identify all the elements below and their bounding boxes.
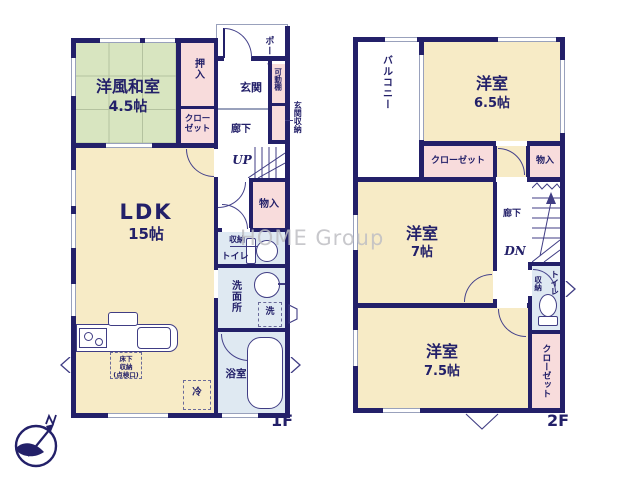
floor-plan-canvas: 洋風和室 4.5帖 押入 クローゼット 玄関 ポーチ 可動棚 玄関収納 廊下 U… xyxy=(0,0,640,480)
kitchen-sink xyxy=(137,327,171,349)
wall xyxy=(268,140,285,144)
door-opening xyxy=(214,270,218,298)
monoire-2f-label: 物入 xyxy=(531,156,559,166)
window xyxy=(71,58,76,96)
door-opening xyxy=(214,149,218,177)
compass-north-icon xyxy=(8,412,66,474)
washitsu-name-label: 洋風和室 xyxy=(87,78,169,96)
door-swing-mark xyxy=(288,304,300,324)
storage-2f-label: 収納 xyxy=(533,276,542,291)
monoire-1f-label: 物入 xyxy=(254,199,284,211)
stairs-2f xyxy=(532,182,560,262)
wall xyxy=(526,141,530,178)
bedroom3-name-label: 洋室 xyxy=(412,343,472,361)
window xyxy=(353,330,358,366)
door-opening xyxy=(496,177,527,182)
toilet-bowl-2f xyxy=(539,294,557,317)
ldk-name-label: LDK xyxy=(110,200,182,224)
underfloor-line2: 収納 xyxy=(120,363,133,371)
genkan-storage-label: 玄関収納 xyxy=(293,101,302,133)
room-ldk xyxy=(76,148,214,413)
window-swing-mark xyxy=(465,413,499,431)
underfloor-line3: (点検口) xyxy=(113,371,138,379)
window xyxy=(385,37,417,42)
underfloor-line1: 床下 xyxy=(120,355,133,363)
door-opening xyxy=(496,141,527,146)
stove xyxy=(79,328,107,348)
room-genkan-storage xyxy=(272,106,285,140)
closet-1f-label: クローゼット xyxy=(182,115,213,135)
floor2-label: 2F xyxy=(547,411,569,430)
door-opening xyxy=(528,270,532,296)
washbasin xyxy=(254,272,280,298)
balcony-sliding-door xyxy=(419,55,424,140)
washbasin-tap xyxy=(278,283,285,285)
wall xyxy=(214,264,290,268)
window xyxy=(383,408,420,413)
bedroom3-size-label: 7.5帖 xyxy=(416,365,468,380)
closet-2f-top-label: クローゼット xyxy=(428,156,488,166)
washroom-label: 洗面所 xyxy=(229,280,241,313)
stairs-1f xyxy=(248,147,285,178)
stairs-down-label: DN xyxy=(503,245,527,259)
floor1-label: 1F xyxy=(271,411,293,430)
washitsu-size-label: 4.5帖 xyxy=(97,99,159,115)
window xyxy=(100,38,140,43)
wall xyxy=(176,38,181,147)
bathtub xyxy=(247,337,283,409)
stove-burner xyxy=(95,338,103,346)
wall xyxy=(268,61,272,143)
genkan-label: 玄関 xyxy=(229,82,273,95)
step-line xyxy=(218,108,268,110)
oshiire-label: 押入 xyxy=(192,58,204,80)
wall xyxy=(493,141,497,178)
closet-2f-bottom-label: クローゼット xyxy=(540,344,550,398)
vent-chevron xyxy=(565,281,576,297)
window xyxy=(145,38,175,43)
wall xyxy=(528,262,565,266)
vent-chevron xyxy=(60,357,71,373)
porch-label: ポーチ xyxy=(263,36,273,66)
bedroom2-size-label: 7帖 xyxy=(398,246,446,261)
stove-burner xyxy=(84,332,93,341)
window xyxy=(108,413,168,418)
ldk-size-label: 15帖 xyxy=(116,226,176,243)
toilet-1f-label: トイレ xyxy=(220,252,250,262)
wall xyxy=(249,178,290,182)
bedroom2-name-label: 洋室 xyxy=(392,225,452,243)
wall xyxy=(181,106,214,109)
window xyxy=(222,413,258,418)
door-opening xyxy=(497,303,527,308)
sliding-door xyxy=(106,143,152,148)
window xyxy=(71,170,76,206)
fridge-label: 冷 xyxy=(188,388,206,399)
watermark: HOME Group xyxy=(240,226,384,250)
pointer-line xyxy=(285,120,293,121)
underfloor-storage-label: 床下収納(点検口) xyxy=(111,355,141,379)
toilet-2f-label: トイレ xyxy=(548,270,558,296)
window xyxy=(560,60,565,133)
bedroom1-size-label: 6.5帖 xyxy=(466,97,518,112)
window xyxy=(71,284,76,316)
window xyxy=(71,214,76,248)
bedroom1-name-label: 洋室 xyxy=(462,75,522,93)
wall xyxy=(249,178,253,230)
door-opening xyxy=(493,271,497,299)
movable-shelf-label: 可動棚 xyxy=(273,68,282,91)
hallway-2f-label: 廊下 xyxy=(498,209,526,219)
bathroom-label: 浴室 xyxy=(222,368,250,380)
toilet-tank-2f xyxy=(538,316,558,326)
vent-chevron xyxy=(290,357,301,373)
balcony-label: バルコニー xyxy=(380,55,392,110)
wall xyxy=(268,103,285,106)
laundry-label: 洗 xyxy=(261,307,279,317)
kitchen-counter-return xyxy=(108,312,138,326)
stairs-up-label: UP xyxy=(231,154,253,168)
wall xyxy=(214,38,218,413)
wall xyxy=(214,328,290,332)
window xyxy=(498,37,556,42)
wall xyxy=(528,330,565,334)
hallway-1f-label: 廊下 xyxy=(226,124,256,136)
